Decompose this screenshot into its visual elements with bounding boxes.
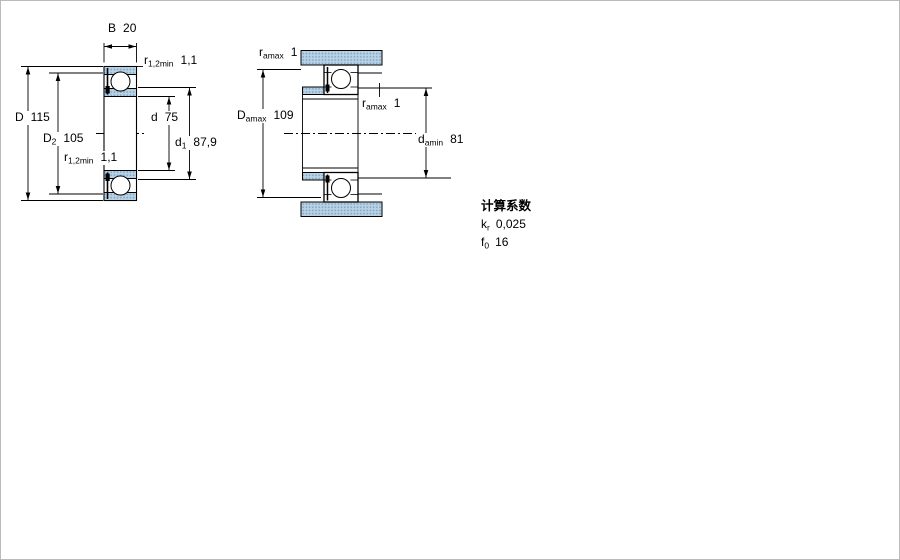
dim-d1 [138, 88, 196, 180]
ball-bottom-right-fig [332, 179, 351, 198]
seal-lip-top [106, 86, 110, 94]
dim-label-damin: damin81 [416, 133, 465, 147]
housing-section-top [301, 51, 382, 66]
dim-label-d: d75 [149, 111, 180, 125]
ball-bottom [111, 176, 130, 195]
dim-label-d1: d187,9 [173, 136, 219, 150]
dim-label-Damax: Damax109 [235, 109, 296, 123]
seal-lip-top-right-fig [326, 85, 330, 92]
housing-section-bottom [301, 202, 382, 217]
factor-f0: f016 [481, 235, 508, 251]
ball-top [111, 72, 130, 91]
dim-label-D2: D2105 [41, 132, 85, 146]
dim-B [104, 43, 137, 63]
seal-lip-bottom-right-fig [326, 176, 330, 183]
factor-kr: kr0,025 [481, 217, 526, 233]
shaft-shoulder-bottom [303, 173, 325, 181]
shaft-shoulder-top [303, 87, 325, 95]
dim-label-D: D115 [13, 111, 52, 125]
bearing-drawing-canvas: B20 D115 D2105 d75 d187,9 r1,2min1,1 r1,… [0, 0, 900, 560]
dim-label-ra-mid: ramax1 [360, 97, 402, 111]
dim-label-r12-top: r1,2min1,1 [144, 54, 197, 68]
dim-label-r12-bottom: r1,2min1,1 [62, 151, 119, 165]
seal-lip-bottom [106, 174, 110, 182]
ball-top-right-fig [332, 70, 351, 89]
dim-label-B: B20 [108, 22, 136, 36]
dim-label-ra-top: ramax1 [259, 46, 297, 60]
drawing-linework [1, 1, 900, 560]
calculation-factors-title: 计算系数 [481, 195, 531, 214]
